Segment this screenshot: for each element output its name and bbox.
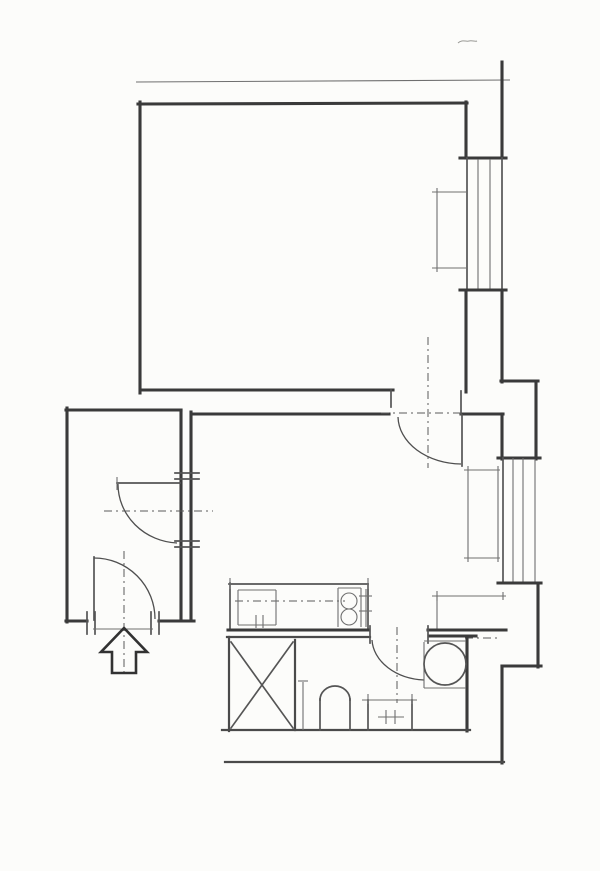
outer-face-line-north [136,80,510,82]
bedroom-door-arc [398,417,461,464]
toilet-bowl-arch [320,686,350,700]
bath-door-arc [372,640,424,680]
entry-door-arc [118,484,177,543]
stove-burner-2 [341,609,357,625]
bedroom-wall-north [138,103,467,104]
floorplan-drawing [0,0,600,871]
squiggle-mark-top-right [458,41,477,43]
floorplan-paper [0,0,600,871]
washer-drum [424,643,466,685]
